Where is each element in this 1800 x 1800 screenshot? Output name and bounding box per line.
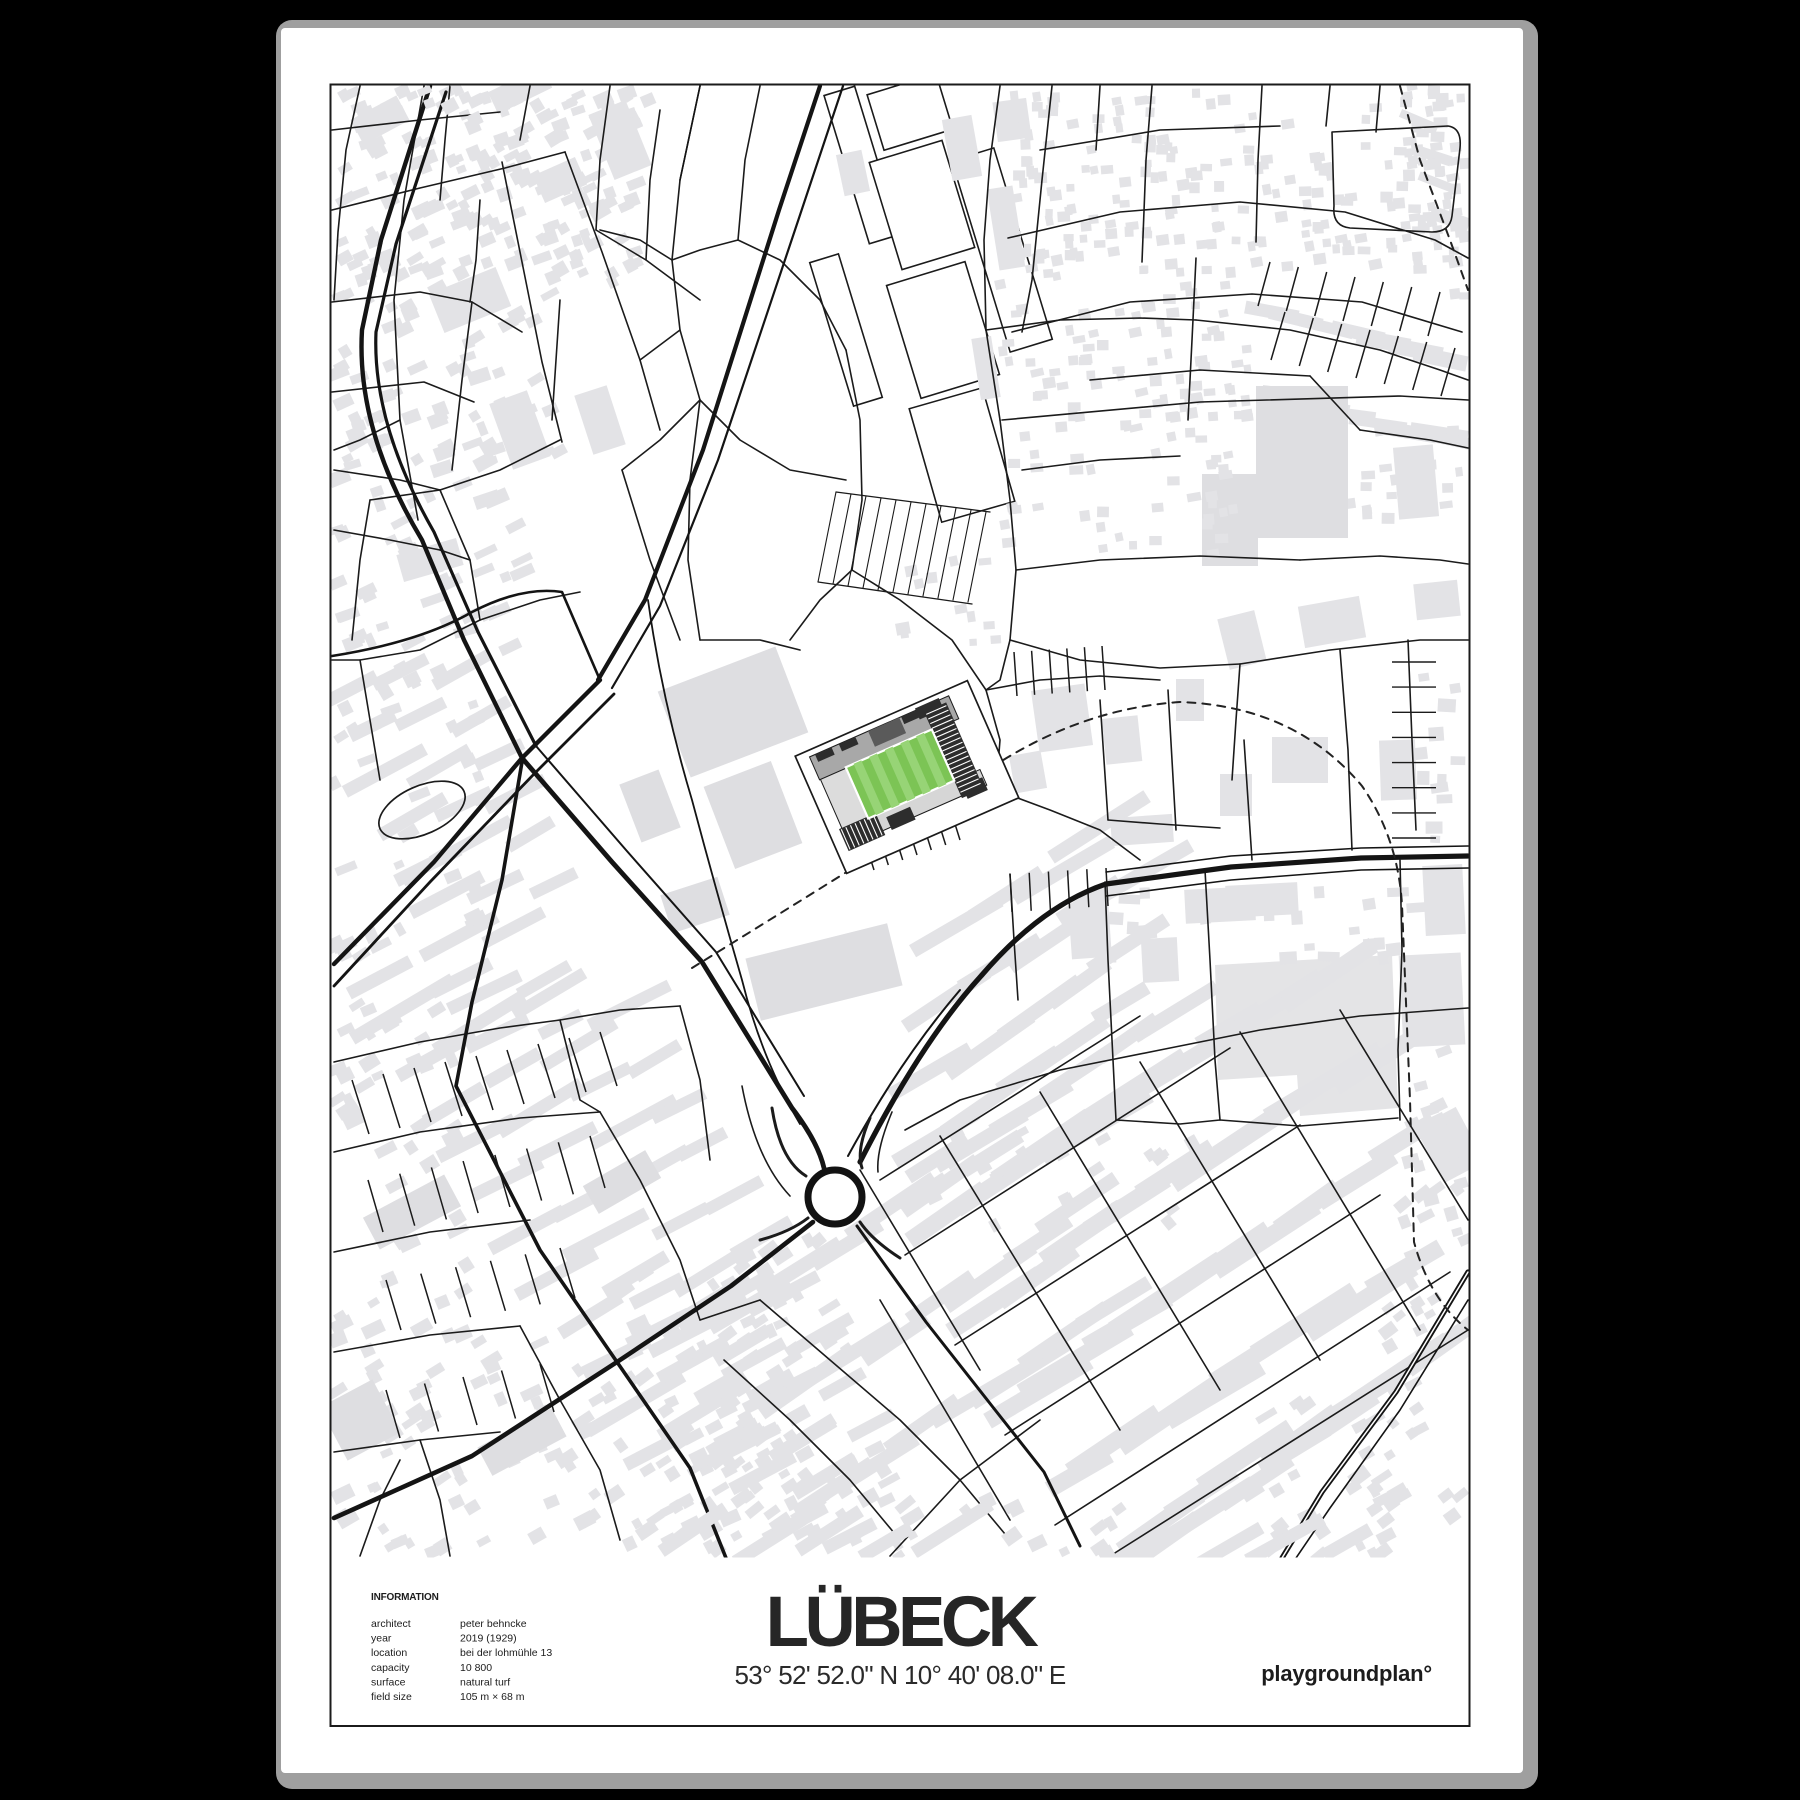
svg-text:year: year <box>371 1633 392 1645</box>
svg-text:surface: surface <box>371 1676 406 1688</box>
svg-text:capacity: capacity <box>371 1662 410 1674</box>
svg-text:53° 52' 52.0" N 10° 40' 08.0": 53° 52' 52.0" N 10° 40' 08.0" E <box>734 1660 1065 1690</box>
svg-text:LÜBECK: LÜBECK <box>766 1583 1039 1662</box>
svg-text:natural turf: natural turf <box>460 1676 510 1688</box>
svg-text:location: location <box>371 1647 407 1659</box>
svg-text:field size: field size <box>371 1691 412 1703</box>
svg-text:playgroundplan°: playgroundplan° <box>1261 1661 1432 1686</box>
svg-text:peter behncke: peter behncke <box>460 1618 527 1630</box>
svg-text:2019 (1929): 2019 (1929) <box>460 1633 517 1645</box>
svg-text:bei der lohmühle 13: bei der lohmühle 13 <box>460 1647 552 1659</box>
svg-text:105 m × 68 m: 105 m × 68 m <box>460 1691 525 1703</box>
svg-text:architect: architect <box>371 1618 411 1630</box>
svg-text:INFORMATION: INFORMATION <box>371 1592 439 1603</box>
svg-text:10 800: 10 800 <box>460 1662 492 1674</box>
